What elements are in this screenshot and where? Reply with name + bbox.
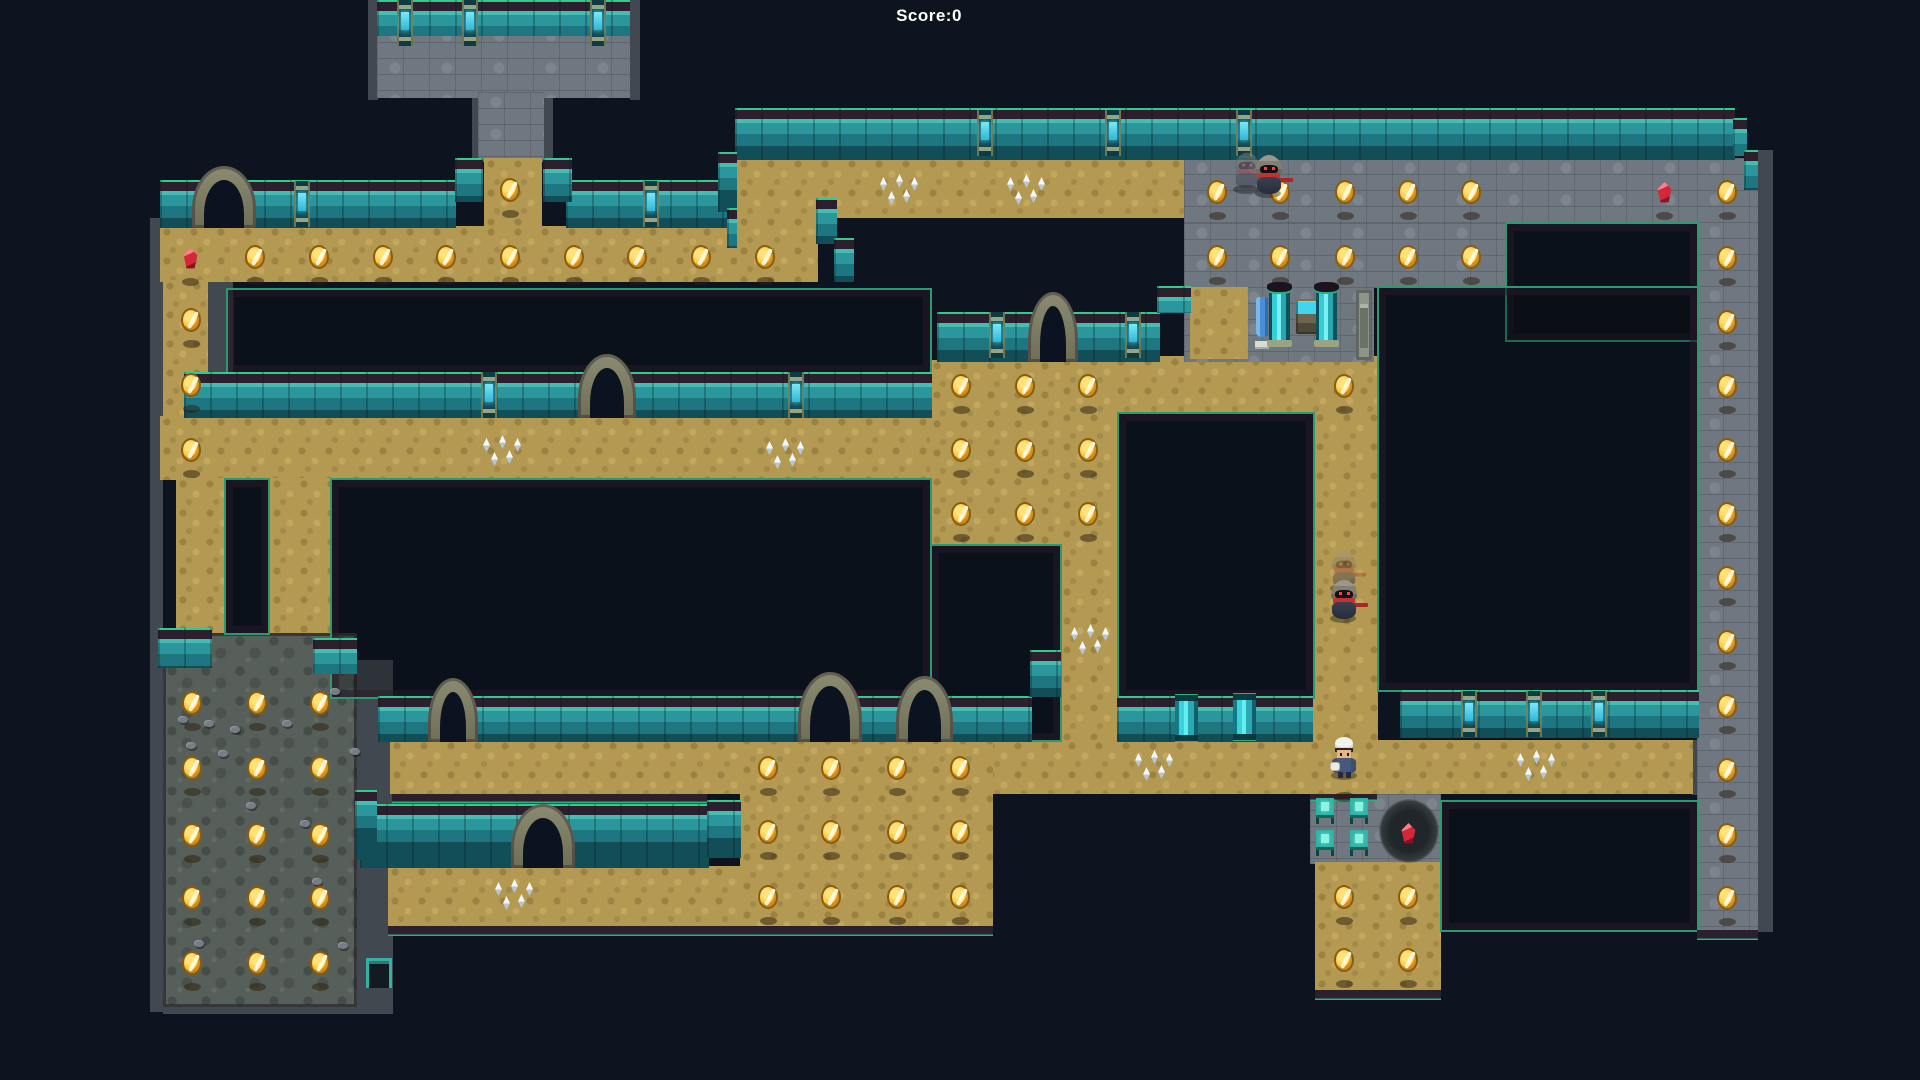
arch-door <box>1028 292 1078 362</box>
dirt-spot <box>1400 212 1417 220</box>
coin <box>887 820 907 844</box>
coin <box>1334 948 1354 972</box>
coin <box>310 823 330 847</box>
coin <box>1717 438 1737 462</box>
coin <box>373 245 393 269</box>
dirt-spot <box>1719 278 1736 286</box>
gem-pillar <box>462 0 478 46</box>
coin <box>1078 374 1098 398</box>
dirt-spot <box>249 918 266 926</box>
dirt-spot <box>312 983 329 991</box>
arch-door <box>192 166 256 228</box>
floor-sand <box>1060 356 1378 413</box>
rock <box>330 688 340 695</box>
gem-pillar <box>1461 691 1477 737</box>
floor-sand <box>160 416 930 480</box>
coin <box>1461 180 1481 204</box>
wall-step <box>1744 150 1758 190</box>
glass-tank <box>1269 284 1290 344</box>
gem-pillar <box>590 0 606 46</box>
gem-pillar <box>788 372 804 418</box>
dirt-spot <box>1209 212 1226 220</box>
dirt-spot <box>1017 534 1034 542</box>
dirt-spot <box>1719 790 1736 798</box>
coin <box>821 756 841 780</box>
dirt-spot <box>1719 662 1736 670</box>
floor-stone <box>1697 158 1758 930</box>
floor-sand <box>176 478 224 638</box>
rock <box>246 802 256 809</box>
chair <box>1350 798 1368 824</box>
wall-step <box>1157 286 1191 313</box>
gem-pillar <box>1526 691 1542 737</box>
dirt-spot <box>1463 212 1480 220</box>
spike-trap <box>1514 752 1554 784</box>
coin <box>1398 948 1418 972</box>
spike-trap <box>1132 752 1172 784</box>
dirt-spot <box>1336 917 1353 925</box>
gem-pillar <box>397 0 413 46</box>
coin <box>1717 310 1737 334</box>
spike-trap <box>1004 176 1044 208</box>
dirt-spot <box>1337 212 1354 220</box>
coin <box>950 756 970 780</box>
dirt-spot <box>1719 406 1736 414</box>
coin <box>1015 438 1035 462</box>
gem-pillar <box>989 312 1005 358</box>
teal-column <box>1233 694 1256 740</box>
dirt-spot <box>1017 406 1034 414</box>
coin <box>310 756 330 780</box>
dirt-spot <box>889 852 906 860</box>
dirt-spot <box>1017 470 1034 478</box>
coin <box>310 951 330 975</box>
floor-sand <box>1190 287 1248 359</box>
coin <box>181 308 201 332</box>
rock <box>218 750 228 757</box>
wall-step <box>355 790 377 860</box>
dirt-spot <box>438 277 455 285</box>
dirt-spot <box>249 788 266 796</box>
wall-segment <box>543 158 572 202</box>
rock <box>312 878 322 885</box>
coin <box>1015 374 1035 398</box>
coin <box>1398 245 1418 269</box>
coin <box>821 820 841 844</box>
wall-cap <box>392 794 707 805</box>
dirt-spot <box>311 277 328 285</box>
dirt-spot <box>823 788 840 796</box>
dirt-spot <box>953 406 970 414</box>
dirt-spot <box>1719 470 1736 478</box>
coin <box>500 178 520 202</box>
wall-segment <box>313 638 357 674</box>
dirt-spot <box>375 277 392 285</box>
dirt-spot <box>312 723 329 731</box>
dirt-spot <box>823 852 840 860</box>
coin <box>691 245 711 269</box>
coin <box>564 245 584 269</box>
coin <box>1398 180 1418 204</box>
dungeon-map <box>0 0 1920 1080</box>
coin <box>310 886 330 910</box>
coin <box>950 885 970 909</box>
dirt-spot <box>184 983 201 991</box>
dirt-spot <box>953 534 970 542</box>
coin <box>310 691 330 715</box>
coin <box>1717 566 1737 590</box>
dirt-spot <box>1080 406 1097 414</box>
wall-step <box>727 208 737 248</box>
dirt-spot <box>952 852 969 860</box>
coin <box>1461 245 1481 269</box>
dirt-spot <box>312 918 329 926</box>
dirt-spot <box>1400 277 1417 285</box>
coin <box>247 951 267 975</box>
gem-pillar <box>643 181 659 227</box>
wall-segment <box>455 158 483 202</box>
dirt-spot <box>1719 534 1736 542</box>
dirt-spot <box>823 917 840 925</box>
wall-cap <box>388 926 993 938</box>
rock <box>338 942 348 949</box>
coin <box>1717 630 1737 654</box>
coin <box>1717 246 1737 270</box>
game-viewport[interactable]: Score:0 <box>0 0 1920 1080</box>
dirt-spot <box>693 277 710 285</box>
wall-step <box>834 238 854 282</box>
coin <box>1717 886 1737 910</box>
coin <box>247 756 267 780</box>
coin <box>182 756 202 780</box>
dirt-spot <box>502 277 519 285</box>
coin <box>182 691 202 715</box>
coin <box>182 951 202 975</box>
gem-pillar <box>1125 312 1141 358</box>
spike-trap <box>480 437 520 469</box>
dirt-spot <box>1656 212 1673 220</box>
gem-pillar <box>977 110 993 156</box>
coin <box>1398 885 1418 909</box>
floor-sand <box>390 740 1693 794</box>
dirt-spot <box>502 210 519 218</box>
coin <box>247 823 267 847</box>
enemy-ghost <box>1254 155 1284 195</box>
coin <box>1270 245 1290 269</box>
coin <box>1078 438 1098 462</box>
rock <box>194 940 204 947</box>
dirt-spot <box>1400 980 1417 988</box>
coin <box>627 245 647 269</box>
coin <box>887 756 907 780</box>
enemy-ghost <box>1329 580 1359 620</box>
gem-pillar <box>1105 110 1121 156</box>
dirt-spot <box>312 788 329 796</box>
dark-pit <box>1117 412 1315 699</box>
coin <box>758 756 778 780</box>
coin <box>181 438 201 462</box>
coin <box>951 438 971 462</box>
wall-segment <box>1400 690 1699 738</box>
wall-segment <box>1117 696 1313 742</box>
coin <box>1207 245 1227 269</box>
dirt-spot <box>1719 918 1736 926</box>
floor-trim <box>1757 150 1773 932</box>
dirt-spot <box>183 405 200 413</box>
dirt-spot <box>1719 726 1736 734</box>
dirt-spot <box>760 917 777 925</box>
coin <box>1334 374 1354 398</box>
coin <box>821 885 841 909</box>
dirt-spot <box>1336 980 1353 988</box>
coin <box>758 820 778 844</box>
dirt-spot <box>889 788 906 796</box>
rock <box>230 726 240 733</box>
dirt-spot <box>760 788 777 796</box>
chair <box>1316 798 1334 824</box>
wall-cap <box>1315 990 1441 1002</box>
wall-segment <box>184 372 932 418</box>
dirt-spot <box>757 277 774 285</box>
dark-pit <box>330 478 932 699</box>
floor-sand <box>737 158 1184 218</box>
dirt-spot <box>249 855 266 863</box>
dirt-spot <box>1337 277 1354 285</box>
dark-pit <box>1377 286 1699 692</box>
dirt-spot <box>312 855 329 863</box>
dirt-spot <box>184 788 201 796</box>
dirt-spot <box>1209 277 1226 285</box>
coin <box>1717 180 1737 204</box>
floor-sand <box>270 478 330 638</box>
dirt-spot <box>184 723 201 731</box>
dirt-spot <box>184 918 201 926</box>
coin <box>1717 502 1737 526</box>
dirt-spot <box>1719 855 1736 863</box>
coin <box>1078 502 1098 526</box>
dirt-spot <box>953 470 970 478</box>
exit-hatch <box>366 958 392 988</box>
coin <box>436 245 456 269</box>
coin <box>951 502 971 526</box>
coin <box>182 823 202 847</box>
wall-cap <box>1697 930 1758 942</box>
floor-trim <box>630 0 640 100</box>
wall-step <box>707 800 741 858</box>
coin <box>1335 180 1355 204</box>
gem-pillar <box>481 372 497 418</box>
dirt-spot <box>183 470 200 478</box>
coin <box>1334 885 1354 909</box>
teal-column <box>1175 695 1198 741</box>
wall-step <box>718 152 737 212</box>
gem-pillar <box>1591 691 1607 737</box>
dark-pit <box>226 288 932 374</box>
wall-segment <box>158 628 212 668</box>
dirt-spot <box>1080 470 1097 478</box>
coin <box>950 820 970 844</box>
dirt-spot <box>1719 342 1736 350</box>
coin <box>1717 758 1737 782</box>
coin <box>245 245 265 269</box>
coin <box>758 885 778 909</box>
coin <box>181 373 201 397</box>
dark-pit <box>224 478 270 635</box>
dirt-spot <box>760 852 777 860</box>
score-label: Score:0 <box>896 6 962 26</box>
dirt-spot <box>1719 598 1736 606</box>
dirt-spot <box>249 983 266 991</box>
coin <box>309 245 329 269</box>
spike-trap <box>492 881 532 913</box>
player-character <box>1330 737 1358 781</box>
coin <box>755 245 775 269</box>
dirt-spot <box>1336 406 1353 414</box>
dirt-spot <box>952 917 969 925</box>
coin <box>247 886 267 910</box>
dirt-spot <box>183 340 200 348</box>
rock <box>282 720 292 727</box>
dark-pit <box>1440 800 1699 932</box>
rock <box>350 748 360 755</box>
dirt-spot <box>952 788 969 796</box>
dirt-spot <box>1080 534 1097 542</box>
rock <box>178 716 188 723</box>
coin <box>1015 502 1035 526</box>
floor-stone <box>478 92 544 162</box>
coin <box>1717 374 1737 398</box>
floor-trim <box>150 630 163 1012</box>
dirt-spot <box>629 277 646 285</box>
coin <box>247 691 267 715</box>
floor-sand <box>1315 862 1441 992</box>
dirt-spot <box>1463 277 1480 285</box>
dirt-spot <box>566 277 583 285</box>
gem-pillar <box>294 181 310 227</box>
floor-trim <box>543 92 553 162</box>
coin <box>1717 694 1737 718</box>
coin <box>887 885 907 909</box>
rock <box>204 720 214 727</box>
dirt-spot <box>249 723 266 731</box>
dirt-spot <box>889 917 906 925</box>
spike-trap <box>1068 626 1108 658</box>
coin <box>182 886 202 910</box>
coin <box>1207 180 1227 204</box>
dirt-spot <box>1400 917 1417 925</box>
dirt-spot <box>182 278 199 286</box>
dirt-spot <box>1272 212 1289 220</box>
dirt-spot <box>184 855 201 863</box>
wall-step <box>1030 650 1061 697</box>
chair <box>1350 830 1368 856</box>
coin <box>951 374 971 398</box>
dirt-spot <box>247 277 264 285</box>
chair <box>1316 830 1334 856</box>
rock <box>186 742 196 749</box>
spike-trap <box>877 176 917 208</box>
floor-sand <box>388 866 742 926</box>
stone-door <box>1356 290 1372 360</box>
rock <box>300 820 310 827</box>
dirt-spot <box>1719 212 1736 220</box>
coin <box>500 245 520 269</box>
spike-trap <box>763 440 803 472</box>
gem-pillar <box>1236 110 1252 156</box>
coin <box>1717 823 1737 847</box>
glass-tank <box>1316 284 1337 344</box>
coin <box>1335 245 1355 269</box>
